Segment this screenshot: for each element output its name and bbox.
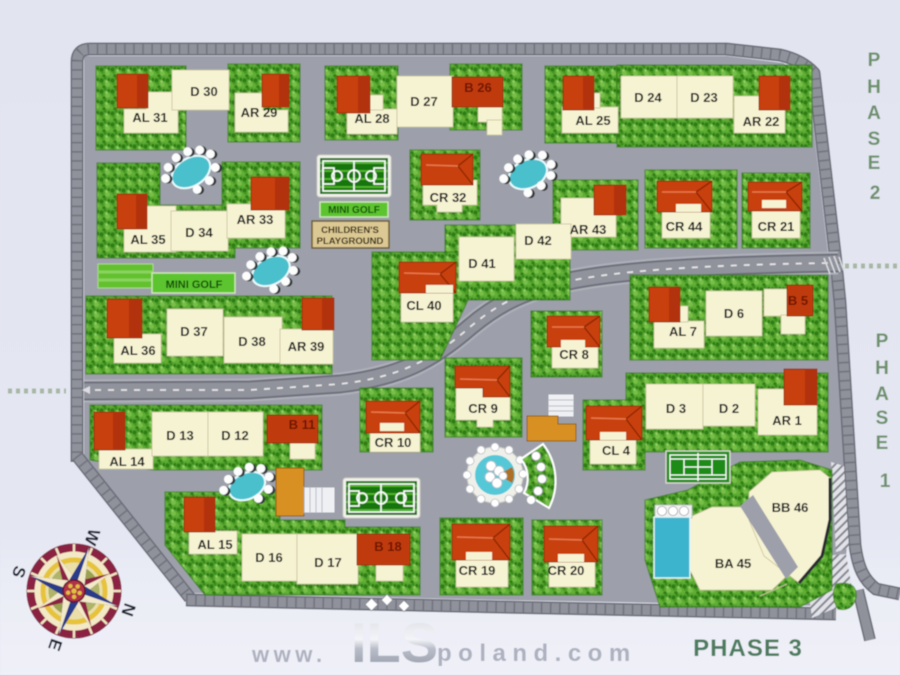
svg-text:B 18: B 18 (374, 539, 401, 554)
svg-text:D 6: D 6 (724, 306, 744, 321)
svg-text:B 5: B 5 (788, 293, 808, 308)
svg-text:D 23: D 23 (690, 90, 717, 105)
svg-text:BB 46: BB 46 (772, 500, 809, 515)
svg-text:AR 1: AR 1 (772, 413, 802, 428)
svg-text:AR 22: AR 22 (743, 114, 780, 129)
svg-text:P: P (868, 50, 881, 71)
svg-text:P: P (876, 331, 889, 352)
svg-text:D 27: D 27 (410, 94, 437, 109)
svg-text:CR 44: CR 44 (666, 219, 704, 234)
svg-text:CR 21: CR 21 (758, 219, 795, 234)
svg-text:D 13: D 13 (166, 428, 193, 443)
svg-text:CL 4: CL 4 (602, 443, 631, 458)
svg-text:D 12: D 12 (221, 428, 248, 443)
svg-text:AL 31: AL 31 (132, 110, 167, 125)
svg-text:CR 8: CR 8 (559, 347, 589, 362)
svg-text:D 17: D 17 (314, 555, 341, 570)
svg-text:1: 1 (880, 471, 891, 492)
svg-text:MINI GOLF: MINI GOLF (166, 279, 223, 291)
svg-text:S: S (868, 129, 881, 150)
svg-text:CR 19: CR 19 (459, 563, 496, 578)
svg-text:CL 40: CL 40 (406, 298, 441, 313)
svg-text:D 2: D 2 (719, 401, 739, 416)
svg-text:ILS: ILS (351, 611, 438, 674)
svg-text:AL 14: AL 14 (109, 454, 145, 469)
svg-text:AR 33: AR 33 (237, 212, 274, 227)
svg-text:D 30: D 30 (190, 84, 217, 99)
svg-text:D 38: D 38 (238, 334, 265, 349)
svg-text:AL 28: AL 28 (354, 111, 389, 126)
svg-text:CR 10: CR 10 (375, 435, 412, 450)
svg-text:PLAYGROUND: PLAYGROUND (317, 236, 384, 247)
svg-text:AL 35: AL 35 (130, 232, 165, 247)
svg-text:B 11: B 11 (289, 417, 316, 432)
svg-text:AL 7: AL 7 (669, 324, 697, 339)
svg-text:D 34: D 34 (185, 225, 213, 240)
svg-text:E: E (876, 433, 889, 454)
svg-text:A: A (867, 103, 881, 124)
svg-text:PHASE 3: PHASE 3 (693, 635, 803, 662)
svg-text:CHILDREN'S: CHILDREN'S (321, 225, 379, 236)
svg-text:CR 9: CR 9 (468, 401, 498, 416)
svg-text:www.: www. (251, 642, 327, 667)
svg-text:S: S (876, 408, 889, 429)
svg-text:AL 36: AL 36 (120, 343, 155, 358)
svg-text:AL 25: AL 25 (575, 113, 610, 128)
svg-text:AR 39: AR 39 (288, 339, 325, 354)
svg-text:D 3: D 3 (666, 401, 686, 416)
svg-text:AL 15: AL 15 (197, 537, 232, 552)
svg-text:D 24: D 24 (634, 90, 662, 105)
svg-text:H: H (867, 77, 881, 98)
svg-text:2: 2 (870, 183, 881, 204)
svg-text:AR 29: AR 29 (241, 105, 278, 120)
svg-text:E: E (868, 153, 881, 174)
svg-text:D 16: D 16 (255, 550, 282, 565)
svg-text:B 26: B 26 (464, 80, 491, 95)
svg-text:MINI GOLF: MINI GOLF (328, 205, 380, 216)
svg-text:A: A (875, 384, 889, 405)
svg-text:CR 20: CR 20 (548, 563, 585, 578)
svg-text:D 37: D 37 (180, 324, 207, 339)
svg-text:D 42: D 42 (524, 233, 551, 248)
svg-text:BA 45: BA 45 (715, 556, 751, 571)
svg-text:H: H (875, 358, 889, 379)
svg-text:poland.com: poland.com (437, 640, 637, 667)
svg-text:CR 32: CR 32 (430, 190, 467, 205)
svg-text:AR 43: AR 43 (570, 222, 607, 237)
svg-text:D 41: D 41 (468, 256, 495, 271)
